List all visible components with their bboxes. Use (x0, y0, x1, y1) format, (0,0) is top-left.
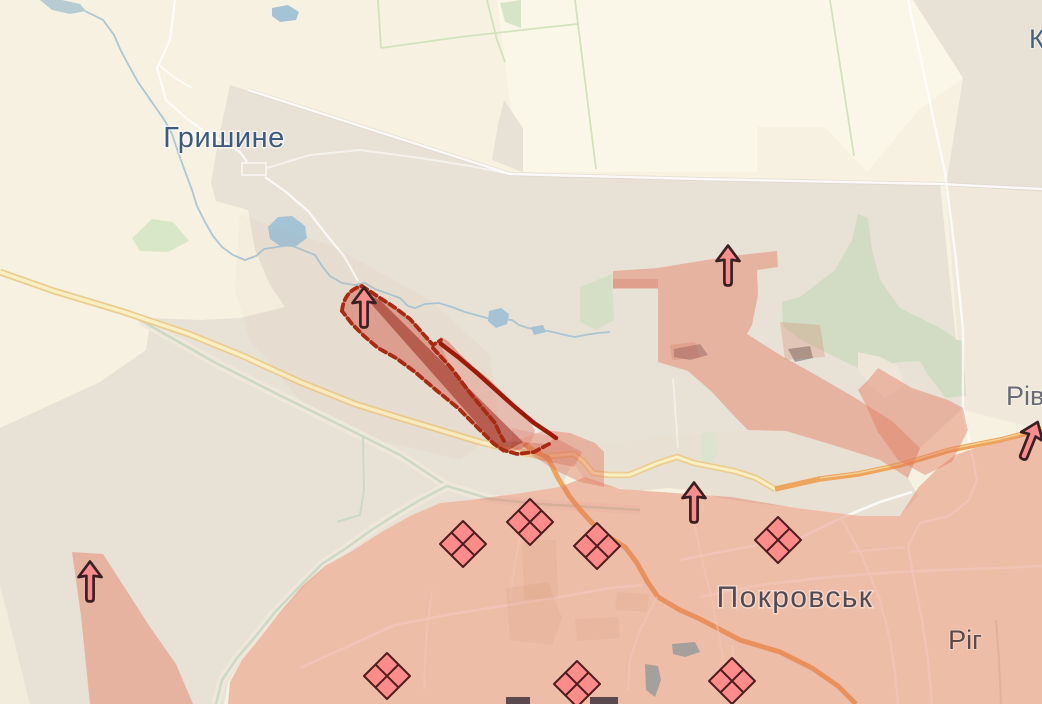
svg-text:Рівне: Рівне (1006, 381, 1042, 411)
svg-text:Покровськ: Покровськ (717, 581, 874, 614)
svg-text:Гришине: Гришине (163, 122, 285, 154)
svg-text:К: К (1029, 24, 1042, 54)
svg-text:Ріг: Ріг (948, 625, 982, 655)
